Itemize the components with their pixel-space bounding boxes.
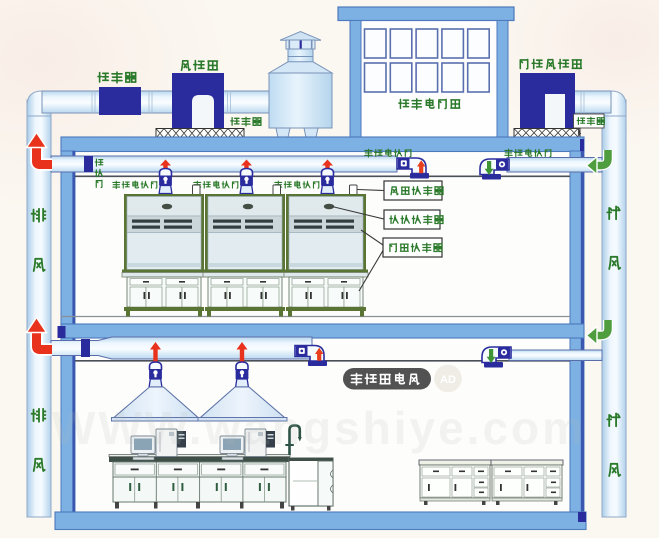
svg-text:WWW.wangshiye.com: WWW.wangshiye.com bbox=[52, 402, 586, 454]
svg-text:AD: AD bbox=[440, 374, 456, 386]
